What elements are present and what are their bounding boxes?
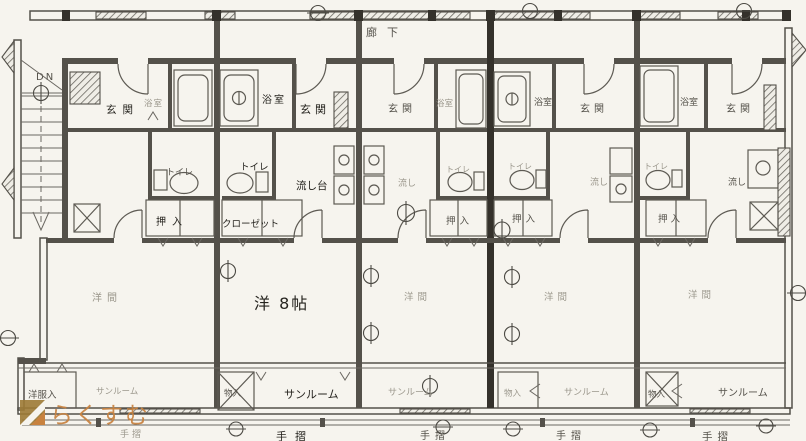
toilet-label: トイレ [166,168,193,178]
sink-label: 流し台 [296,179,328,192]
circle-cross-symbol [364,322,379,344]
door-arc [294,210,322,238]
toilet-fixture [510,170,546,190]
circle-cross-symbol [494,219,510,241]
left-bay-window [2,168,14,200]
corridor-label: 廊下 [366,25,408,39]
bathtub [640,66,678,126]
kitchen-sink [748,150,778,188]
circle-cross-symbol [505,266,520,288]
sink-label: 流し [398,177,416,189]
door-arc [560,210,588,238]
kitchen-sink [364,146,384,204]
bath-label: 浴室 [436,98,454,109]
top-wall-hatch [96,12,146,19]
bath-label: 浴室 [144,98,163,109]
watermark-text: らくすむ [50,403,150,429]
stairwell-wall [62,58,68,238]
circle-cross-symbol [756,419,776,433]
door-arc [398,210,426,238]
sunroom-label: サンルーム [718,387,768,399]
floor-plan-drawing: 廊下 DN [0,0,806,441]
bath-label: 浴室 [262,93,286,106]
corridor-wall [66,58,786,64]
unit-4: 浴室 玄関 トイレ 押入 流し 洋間 物入 サンルーム 手摺 [504,96,609,441]
toilet-label: トイレ [508,162,532,171]
kitchen-sink [334,146,354,204]
circle-cross-symbol [221,260,236,282]
genkan-label: 玄関 [580,102,608,115]
party-wall-center [487,21,494,408]
room-label: 洋間 [688,289,715,301]
toilet-fixture [646,170,682,190]
bathtub [494,72,530,126]
storage-label: 物入 [648,389,666,400]
sunroom-label: サンルーム [564,387,609,398]
left-wall-lower [40,238,47,360]
unit-2: 浴室 玄関 トイレ 流し台 クローゼット 洋 8帖 物入 サンルーム 手摺 [222,93,339,441]
toilet-fixture [227,172,268,193]
bathtub [174,70,212,126]
party-wall [356,21,362,408]
handrail-label: 手摺 [556,429,586,441]
circle-cross-symbol [226,422,246,436]
toilet-fixture [448,172,484,192]
entry-band [66,64,786,132]
closet-label: 押入 [512,213,539,225]
room-label: 洋間 [92,291,122,304]
sunroom-label: サンルーム [96,387,138,397]
room-label: 洋 8帖 [254,294,309,313]
circle-cross-symbol [398,201,415,225]
storage-box [646,372,682,406]
door-arc [114,210,142,238]
watermark-logo-icon [20,400,45,425]
genkan-step [334,92,348,128]
opening-marks [29,364,350,380]
handrail-label: 手摺 [276,429,314,441]
closet-label: 押入 [156,215,188,228]
sunroom-label: サンルーム [388,387,433,398]
top-wall-hatch [310,12,470,19]
shoe-cabinet [70,72,100,104]
circle-cross-symbol [787,286,806,301]
left-bay-window [2,41,14,73]
door-arc [296,64,326,94]
room-label: 洋間 [404,291,431,303]
sunroom-label: サンルーム [284,388,339,401]
bathtub [456,70,486,128]
toilet-label: トイレ [240,162,269,173]
handrail-label: 手摺 [420,429,450,441]
genkan-label: 玄関 [106,103,139,116]
closet-label: 押入 [658,213,683,225]
door-arc [118,64,148,94]
closet-label: 押入 [446,215,473,227]
kitchen-sink [610,148,632,202]
bottom-wall-hatch [400,409,470,413]
circle-cross-symbol [505,323,520,345]
left-wall-upper [14,40,21,238]
storage-box [74,204,100,232]
bath-label: 浴室 [534,96,552,108]
right-bay-window [792,33,806,67]
handrail-label: 手摺 [120,428,144,440]
door-arc [732,64,762,94]
circle-cross-symbol [364,265,379,287]
watermark: らくすむ [20,400,150,429]
genkan-label: 玄関 [726,102,754,115]
party-wall [634,21,640,408]
unit-3: 玄関 浴室 流し トイレ 押入 洋間 サンルーム 手摺 [388,98,473,441]
floor-plan-scan: 廊下 DN [0,0,806,441]
storage-label: 物入 [504,388,522,399]
door-arc [394,64,424,94]
storage-box [750,202,778,230]
room-door-arcs [114,210,736,238]
top-wall-hatch [490,12,590,19]
toilet-label: トイレ [644,162,668,171]
exterior-walls [2,10,806,414]
duct-shaft [778,148,790,236]
genkan-label: 玄関 [300,102,330,116]
circle-cross-symbol [0,331,19,346]
door-arc [708,210,736,238]
closet-label: クローゼット [222,218,279,230]
door-arc [584,64,614,94]
closet [222,200,302,236]
genkan-step [764,85,776,130]
unit-5: 浴室 玄関 トイレ 押入 流し 洋間 物入 サンルーム 手摺 [644,96,768,441]
bottom-wall-hatch [690,409,750,413]
handrail-label: 手摺 [702,430,733,441]
stair-treads [21,96,62,213]
opening-mark [148,112,158,120]
storage-label: 物入 [224,388,242,399]
room-label: 洋間 [544,291,571,303]
bath-label: 浴室 [680,96,698,108]
unit-1: 玄関 浴室 トイレ 押入 洋間 洋服入 サンルーム 手摺 [28,98,193,440]
party-wall [214,21,220,408]
genkan-label: 玄関 [388,102,416,115]
bathtub [220,70,258,126]
wardrobe-label: 洋服入 [28,389,57,401]
toilet-label: トイレ [446,165,470,174]
circle-cross-symbol [503,422,523,436]
top-wall-hatch [640,12,680,19]
sink-label: 流し [590,176,608,188]
sink-label: 流し [728,176,746,188]
